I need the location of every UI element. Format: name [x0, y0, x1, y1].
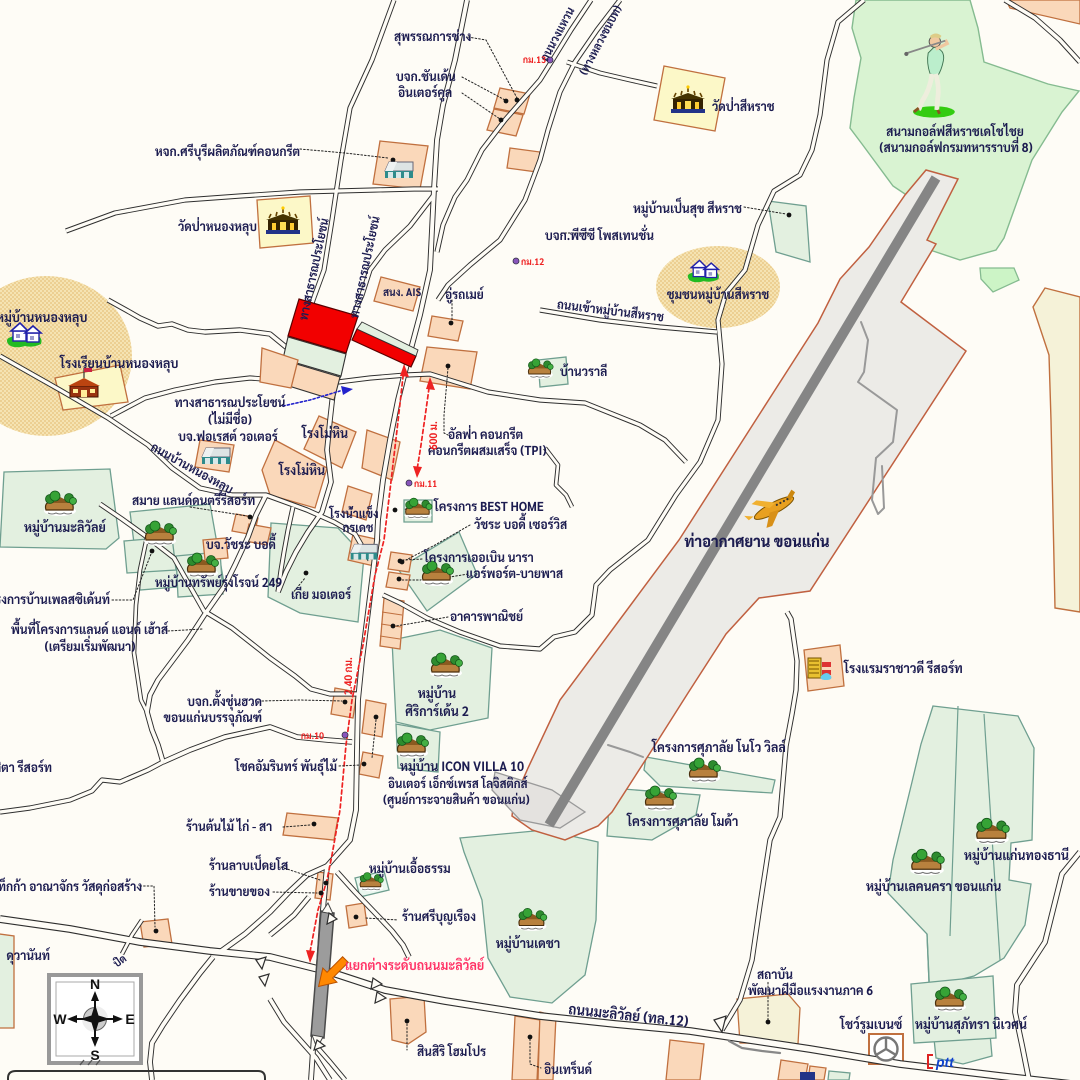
svg-text:ptt: ptt: [935, 1054, 955, 1070]
svg-text:E: E: [125, 1011, 134, 1027]
svg-text:W: W: [53, 1011, 67, 1027]
svg-text:N: N: [90, 976, 100, 992]
svg-text:S: S: [90, 1047, 99, 1063]
